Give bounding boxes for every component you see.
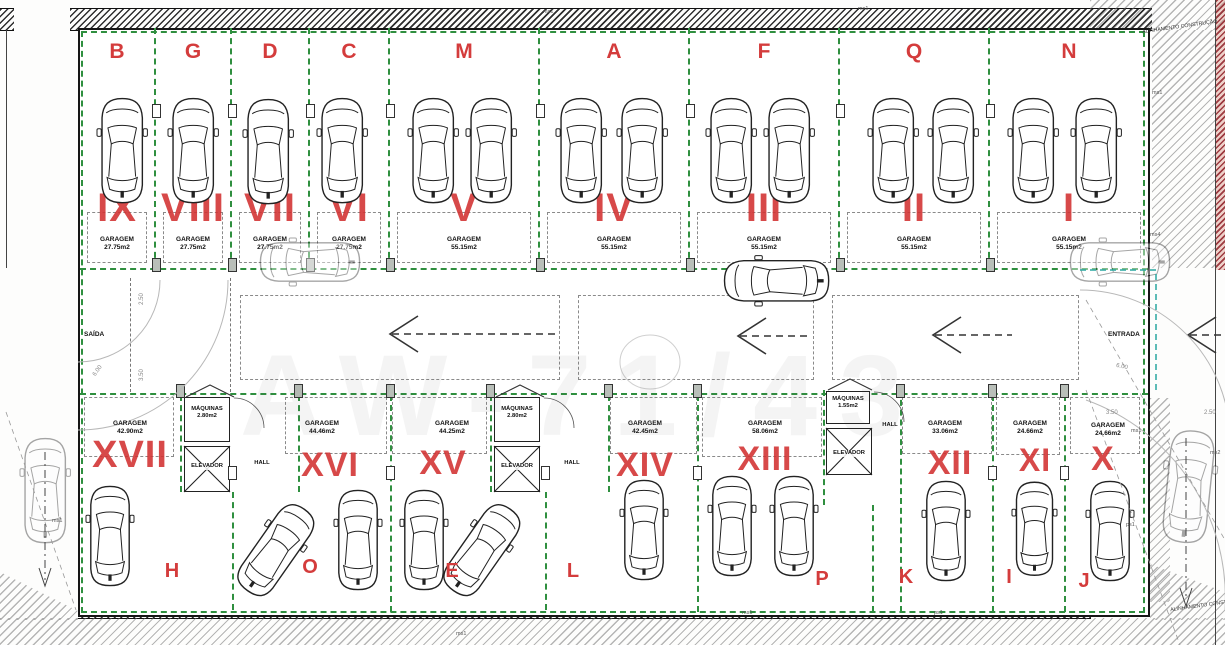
- space-letter: A: [540, 40, 688, 64]
- column-marker: [386, 104, 395, 118]
- partition-wall: [180, 395, 182, 492]
- garage-bay: A IV GARAGEM55.15m2: [540, 28, 690, 268]
- partition-wall: [823, 390, 825, 505]
- lane-outline: [832, 295, 1079, 380]
- space-letter: B: [80, 40, 154, 64]
- partition-wall: [545, 492, 547, 610]
- hall-label: HALL: [881, 422, 898, 429]
- column-marker: [176, 384, 185, 398]
- garage-area-label: GARAGEM27.75m2: [80, 236, 154, 252]
- survey-mark: ms1: [1152, 90, 1162, 96]
- space-letter: H: [165, 560, 179, 583]
- lane-outline: [240, 295, 560, 380]
- garage-numeral: IV: [540, 188, 688, 228]
- column-marker: [306, 104, 315, 118]
- column-marker: [152, 258, 161, 272]
- garage-numeral: XIV: [616, 448, 674, 482]
- garage-numeral: XVII: [92, 436, 168, 474]
- partition-wall: [697, 395, 699, 612]
- property-line: [1215, 0, 1216, 645]
- column-marker: [988, 384, 997, 398]
- survey-mark: ms1: [52, 518, 62, 524]
- site-hatch: [0, 618, 1225, 645]
- column-marker: [686, 258, 695, 272]
- column-marker: [386, 466, 395, 480]
- dimension-label: 2.50: [139, 293, 145, 305]
- garage-area-label: GARAGEM58.06m2: [720, 420, 810, 436]
- space-letter: M: [390, 40, 538, 64]
- column-marker: [836, 104, 845, 118]
- garage-bay: C VI GARAGEM27.75m2: [310, 28, 390, 268]
- garage-bay: F III GARAGEM55.15m2: [690, 28, 840, 268]
- dimension-label: 3.50: [139, 369, 145, 381]
- survey-mark: ms1: [543, 9, 553, 15]
- partition-wall: [872, 505, 874, 612]
- site-hatch: [1152, 30, 1216, 268]
- garage-numeral: II: [840, 188, 988, 228]
- garage-numeral: XV: [419, 446, 466, 480]
- hall-label: HALL: [563, 460, 580, 467]
- hall-label: HALL: [253, 460, 270, 467]
- space-letter: I: [1006, 566, 1012, 589]
- column-marker: [486, 384, 495, 398]
- column-marker: [152, 104, 161, 118]
- machines-label: MÁQUINAS1.55m2: [831, 396, 865, 410]
- survey-mark: ps1: [1126, 522, 1135, 528]
- garage-numeral: VII: [232, 188, 308, 228]
- garage-bay: B IX GARAGEM27.75m2: [80, 28, 156, 268]
- garage-area-label: GARAGEM33.06m2: [900, 420, 990, 436]
- partition-wall: [490, 395, 492, 492]
- lane-outline: [578, 295, 814, 380]
- garage-area-label: GARAGEM44.46m2: [277, 420, 367, 436]
- column-marker: [541, 466, 550, 480]
- garage-area-label: GARAGEM55.15m2: [840, 236, 988, 252]
- column-marker: [988, 466, 997, 480]
- column-marker: [1060, 384, 1069, 398]
- boundary-strip: [1216, 0, 1225, 270]
- dimension-label: 3.50: [1106, 410, 1118, 416]
- elevator-label: ELEVADOR: [190, 463, 224, 470]
- survey-mark: ms1: [456, 631, 466, 637]
- column-marker: [836, 258, 845, 272]
- garage-bay: M V GARAGEM55.15m2: [390, 28, 540, 268]
- entrance-label: ENTRADA: [1108, 331, 1140, 338]
- column-marker: [386, 258, 395, 272]
- garage-area-label: GARAGEM24.66m2: [985, 420, 1075, 436]
- space-letter: L: [567, 560, 579, 583]
- machines-label: MÁQUINAS2.80m2: [190, 406, 224, 420]
- column-marker: [686, 104, 695, 118]
- space-letter: P: [815, 568, 828, 591]
- space-letter: G: [156, 40, 230, 64]
- property-line: [6, 30, 7, 268]
- column-marker: [986, 258, 995, 272]
- elevator-label: ELEVADOR: [500, 463, 534, 470]
- space-letter: N: [990, 40, 1148, 64]
- survey-mark: ms1: [858, 6, 868, 12]
- exit-corridor-line: [130, 278, 131, 392]
- garage-area-label: GARAGEM55.15m2: [990, 236, 1148, 252]
- column-marker: [693, 384, 702, 398]
- garage-area-label: GARAGEM44.25m2: [407, 420, 497, 436]
- garage-numeral: XII: [928, 446, 973, 480]
- elevator-label: ELEVADOR: [832, 450, 866, 457]
- exit-label: SAÍDA: [84, 331, 104, 338]
- column-marker: [294, 384, 303, 398]
- column-marker: [986, 104, 995, 118]
- garage-area-label: GARAGEM55.15m2: [390, 236, 538, 252]
- garage-bay: D VII GARAGEM27.75m2: [232, 28, 310, 268]
- garage-bay: Q II GARAGEM55.15m2: [840, 28, 990, 268]
- garage-area-label: GARAGEM42.45m2: [600, 420, 690, 436]
- column-marker: [693, 466, 702, 480]
- garage-area-label: GARAGEM27.75m2: [156, 236, 230, 252]
- garage-numeral: XI: [1019, 444, 1051, 476]
- top-left-wall-hatch: [0, 8, 14, 31]
- ghost-car-icon: [20, 439, 70, 543]
- survey-mark: ps1: [934, 610, 943, 616]
- space-letter: C: [310, 40, 388, 64]
- column-marker: [386, 384, 395, 398]
- exit-corridor-line: [230, 278, 231, 392]
- site-hatch: [0, 560, 78, 620]
- space-letter: O: [302, 556, 318, 579]
- survey-mark: ms2: [1210, 450, 1220, 456]
- garage-area-label: GARAGEM55.15m2: [540, 236, 688, 252]
- garage-numeral: IX: [80, 188, 154, 228]
- garage-area-label: GARAGEM24.66m2: [1063, 422, 1153, 438]
- garage-numeral: XIII: [737, 442, 792, 476]
- garage-area-label: GARAGEM27.75m2: [310, 236, 388, 252]
- garage-area-label: GARAGEM55.15m2: [690, 236, 838, 252]
- column-marker: [896, 384, 905, 398]
- column-marker: [1060, 466, 1069, 480]
- garage-bay: G VIII GARAGEM27.75m2: [156, 28, 232, 268]
- garage-numeral: VIII: [156, 188, 230, 228]
- partition-wall: [232, 492, 234, 610]
- column-marker: [604, 384, 613, 398]
- garage-bay: N I GARAGEM55.15m2: [990, 28, 1148, 268]
- column-marker: [536, 258, 545, 272]
- survey-mark: ms1: [742, 610, 752, 616]
- column-marker: [228, 104, 237, 118]
- garage-numeral: X: [1091, 442, 1115, 476]
- garage-numeral: VI: [310, 188, 388, 228]
- survey-mark: ms4: [1150, 232, 1160, 238]
- space-letter: Q: [840, 40, 988, 64]
- machines-label: MÁQUINAS2.80m2: [500, 406, 534, 420]
- space-letter: J: [1078, 570, 1089, 593]
- column-marker: [536, 104, 545, 118]
- space-letter: K: [899, 566, 913, 589]
- dimension-label: 2.50: [1204, 410, 1216, 416]
- garage-numeral: XVI: [301, 448, 359, 482]
- garage-area-label: GARAGEM27.75m2: [232, 236, 308, 252]
- column-marker: [228, 466, 237, 480]
- column-marker: [228, 258, 237, 272]
- space-letter: D: [232, 40, 308, 64]
- garage-numeral: V: [390, 188, 538, 228]
- space-letter: F: [690, 40, 838, 64]
- garage-numeral: I: [990, 188, 1148, 228]
- column-marker: [306, 258, 315, 272]
- garage-numeral: III: [690, 188, 838, 228]
- space-letter: E: [445, 560, 458, 583]
- floor-plan: B IX GARAGEM27.75m2 G VIII GARAGEM27.75m…: [0, 0, 1225, 645]
